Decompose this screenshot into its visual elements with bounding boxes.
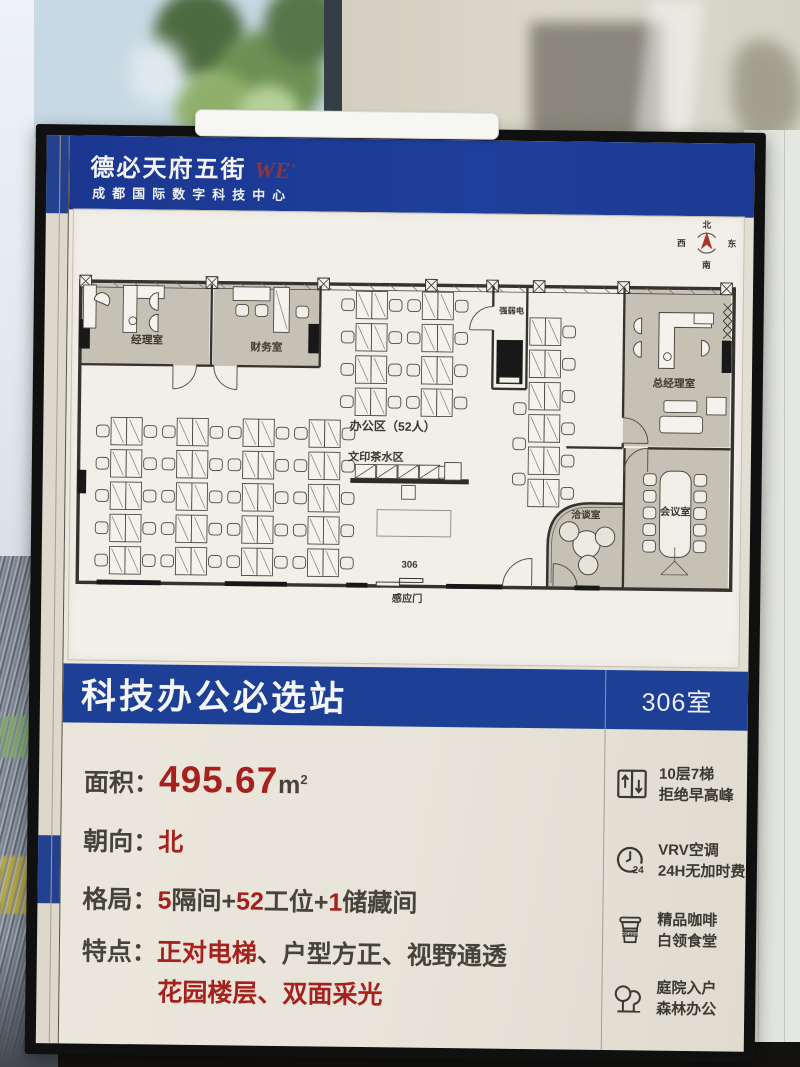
room-label: 总经理室 [652, 377, 695, 391]
area-line: 面积： 495.67 m2 [84, 758, 308, 803]
edge-seam [49, 135, 61, 1043]
print-tea-label: 文印茶水区 [348, 449, 404, 464]
sky-gap [129, 40, 184, 105]
photo-of-floorplan-poster: 德必天府五街 WE+ 成都国际数字科技中心 北 东 [0, 0, 800, 1067]
facing-line: 朝向： 北 [83, 822, 183, 859]
room-label: 洽谈室 [571, 508, 601, 521]
amenity-text: 10层7梯 拒绝早高峰 [659, 764, 735, 807]
room-label: 经理室 [131, 333, 163, 346]
facing-label: 朝向： [83, 822, 158, 859]
amenity-elevator: 10层7梯 拒绝早高峰 [612, 762, 735, 807]
amenity-aircon: 24 VRV空调 24H无加时费 [611, 838, 746, 884]
features-value-1: 正对电梯、户型方正、视野通透 [157, 933, 507, 973]
floor-plan-panel: 北 东 南 西 经理室 [67, 208, 744, 668]
svg-text:南: 南 [702, 259, 711, 270]
edge-blue-band [37, 835, 60, 903]
amenities-column: 10层7梯 拒绝早高峰 24 VRV空调 24H无加时费 [612, 754, 745, 756]
glass-seam [784, 130, 785, 1067]
brand-name: 德必天府五街 [90, 148, 246, 185]
brand-line: 德必天府五街 WE+ [90, 148, 296, 186]
svg-text:北: 北 [702, 219, 711, 230]
svg-text:西: 西 [677, 238, 686, 248]
title-banner: 科技办公必选站 306室 [63, 663, 749, 730]
svg-text:东: 东 [728, 238, 737, 249]
reflection-plant [732, 40, 800, 140]
features-line-2: 花园楼层、双面采光 [81, 972, 382, 1012]
sensor-door-label: 感应门 [392, 592, 423, 605]
amenity-text: 庭院入户 森林办公 [656, 978, 717, 1021]
room-number-label: 306 [401, 560, 418, 571]
edge-blue-band [46, 135, 69, 213]
banner-left: 科技办公必选站 [63, 663, 607, 729]
room-label: 会议室 [660, 505, 691, 518]
clock-24-icon: 24 [611, 838, 652, 882]
svg-text:COFFEE: COFFEE [621, 931, 639, 936]
compass-icon: 北 东 南 西 [677, 219, 737, 271]
area-unit: m2 [278, 771, 308, 800]
features-line-1: 特点： 正对电梯、户型方正、视野通透 [82, 932, 507, 973]
amenity-text: 精品咖啡 白领食堂 [657, 910, 718, 953]
area-label: 面积： [84, 763, 159, 800]
layout-value: 5隔间+52工位+1储藏间 [157, 881, 417, 920]
poster-header: 德必天府五街 WE+ 成都国际数字科技中心 [69, 135, 755, 217]
features-label: 特点： [82, 932, 157, 969]
facing-value: 北 [158, 823, 183, 859]
trees-icon [609, 976, 650, 1020]
office-area-label: 办公区（52人） [350, 418, 436, 434]
room-label: 财务室 [249, 341, 282, 354]
poster-board-inner: 德必天府五街 WE+ 成都国际数字科技中心 北 东 [36, 135, 755, 1052]
banner-right: 306室 [606, 670, 749, 731]
floor-plan-drawing: 北 东 南 西 经理室 [68, 209, 743, 667]
amenity-text: VRV空调 24H无加时费 [658, 840, 746, 883]
banner-title: 科技办公必选站 [81, 668, 348, 722]
layout-label: 格局： [82, 880, 157, 917]
brand-tagline: 成都国际数字科技中心 [92, 183, 292, 204]
banner-room-number: 306室 [641, 682, 712, 719]
brand-we-logo: WE+ [254, 158, 296, 185]
amenity-coffee: COFFEE 精品咖啡 白领食堂 [610, 908, 718, 953]
svg-text:24: 24 [633, 865, 645, 876]
room-label: 强弱电 [499, 305, 525, 315]
details-divider [601, 729, 606, 1050]
amenity-garden: 庭院入户 森林办公 [609, 976, 717, 1021]
layout-line: 格局： 5隔间+52工位+1储藏间 [82, 880, 417, 920]
coffee-icon: COFFEE [610, 908, 651, 952]
poster-hanger-tab [195, 109, 499, 140]
poster-board-frame: 德必天府五街 WE+ 成都国际数字科技中心 北 东 [25, 124, 766, 1063]
elevator-icon [612, 762, 653, 806]
features-value-2: 花园楼层、双面采光 [157, 973, 382, 1012]
area-value: 495.67 [159, 759, 279, 802]
poster: 德必天府五街 WE+ 成都国际数字科技中心 北 东 [59, 135, 755, 1051]
